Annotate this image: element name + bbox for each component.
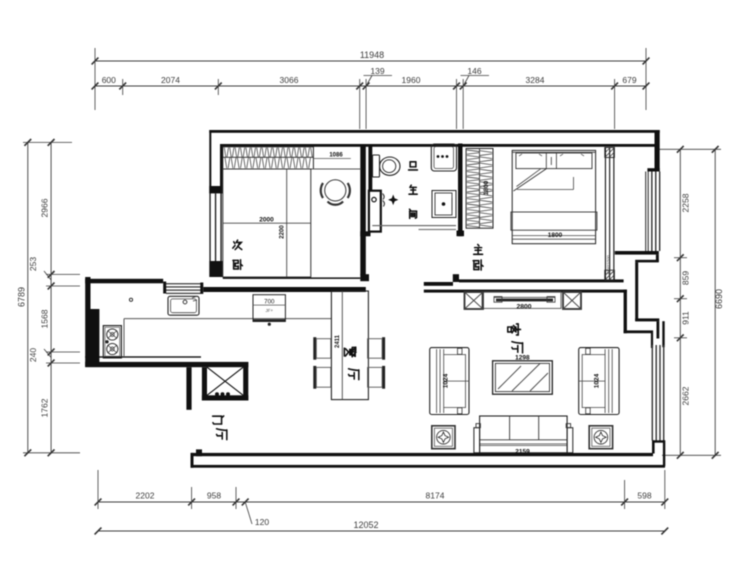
svg-text:2159: 2159	[515, 449, 530, 456]
svg-text:139: 139	[370, 66, 384, 76]
svg-text:911: 911	[681, 311, 691, 325]
svg-text:859: 859	[681, 271, 691, 285]
svg-text:2662: 2662	[681, 386, 691, 405]
svg-text:12052: 12052	[353, 520, 378, 530]
svg-text:2074: 2074	[161, 75, 180, 85]
svg-text:679: 679	[622, 75, 636, 85]
svg-text:2966: 2966	[40, 198, 50, 217]
svg-text:3284: 3284	[526, 75, 545, 85]
svg-text:2258: 2258	[681, 193, 691, 212]
svg-text:120: 120	[255, 517, 269, 527]
svg-text:146: 146	[467, 66, 481, 76]
svg-text:1762: 1762	[40, 398, 50, 417]
svg-text:1024: 1024	[594, 373, 601, 388]
svg-text:2000: 2000	[259, 217, 274, 224]
svg-text:JF+: JF+	[265, 308, 273, 313]
svg-text:700: 700	[264, 299, 275, 306]
svg-text:6789: 6789	[17, 287, 27, 307]
svg-text:8174: 8174	[426, 491, 445, 501]
svg-text:253: 253	[28, 257, 38, 271]
svg-text:2202: 2202	[136, 491, 155, 501]
svg-text:2200: 2200	[280, 225, 286, 239]
svg-text:240: 240	[28, 348, 38, 362]
svg-text:1024: 1024	[443, 373, 450, 388]
svg-text:1800: 1800	[483, 180, 490, 195]
svg-text:11948: 11948	[360, 50, 384, 60]
svg-text:600: 600	[102, 75, 116, 85]
svg-text:2411: 2411	[335, 334, 341, 348]
svg-text:6690: 6690	[714, 289, 724, 309]
svg-text:2800: 2800	[516, 303, 531, 310]
svg-text:958: 958	[207, 491, 221, 501]
svg-text:1568: 1568	[40, 309, 50, 328]
svg-text:1800: 1800	[548, 232, 563, 239]
svg-text:598: 598	[637, 491, 651, 501]
svg-text:1298: 1298	[515, 355, 530, 362]
svg-text:4000*1500: 4000*1500	[606, 255, 611, 275]
svg-text:1086: 1086	[329, 153, 343, 159]
svg-text:3066: 3066	[280, 75, 299, 85]
svg-text:1960: 1960	[402, 75, 421, 85]
